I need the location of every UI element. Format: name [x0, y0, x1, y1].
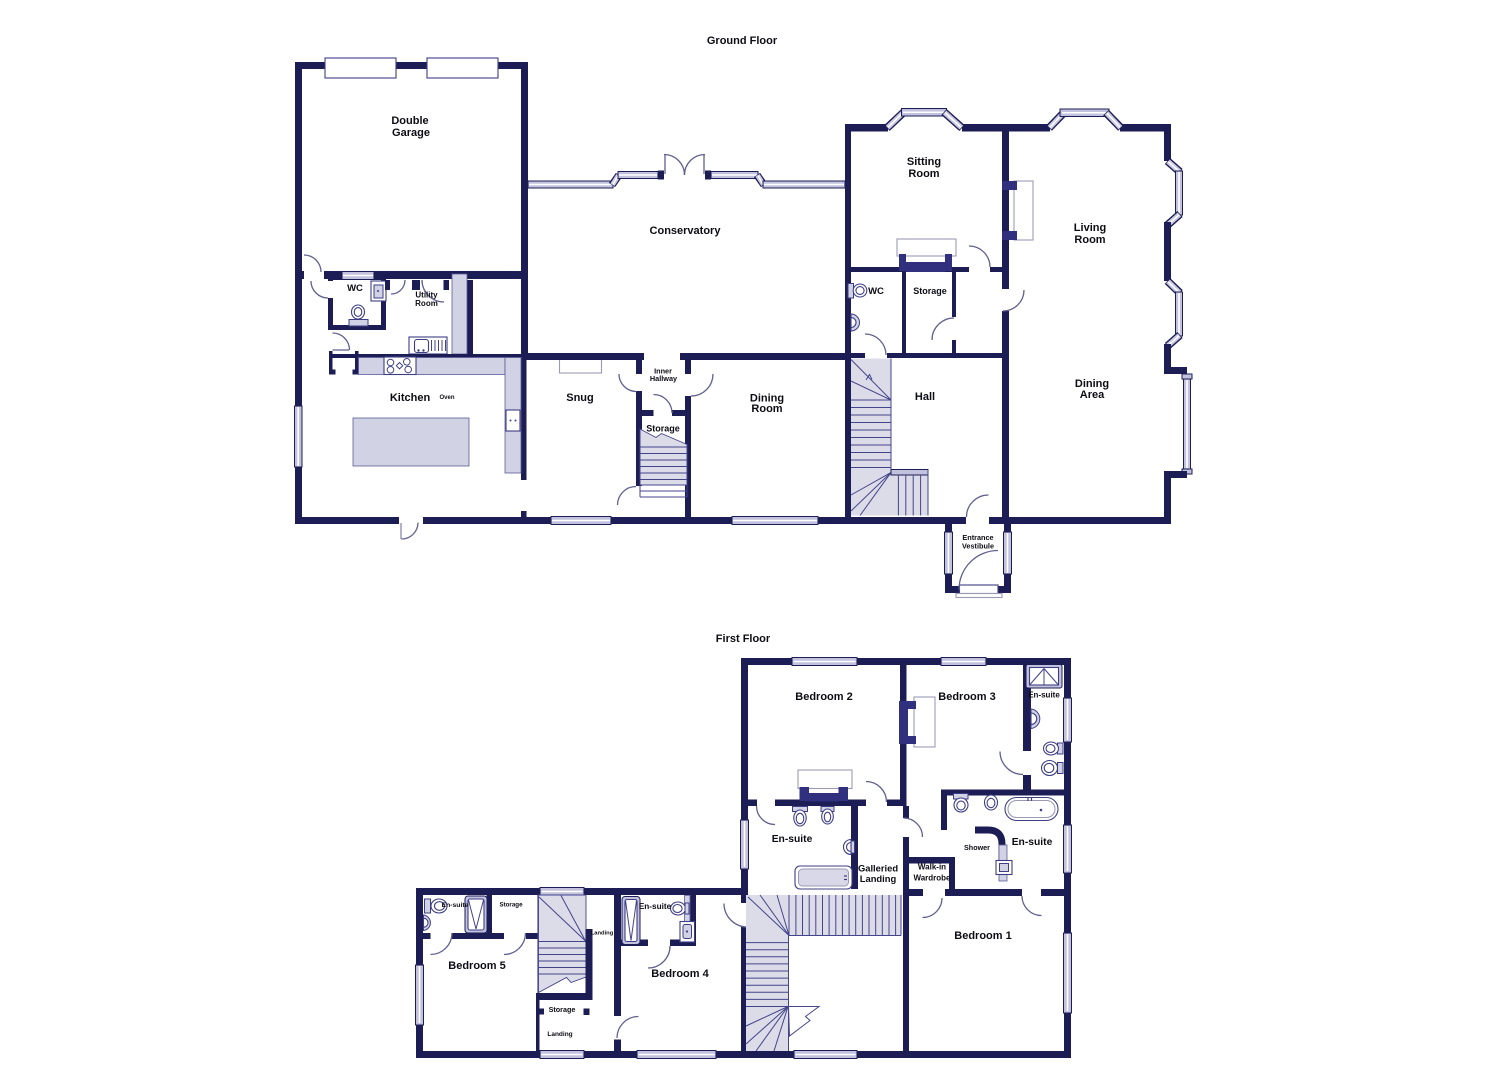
svg-text:Storage: Storage	[549, 1005, 576, 1014]
svg-text:Room: Room	[415, 299, 438, 308]
svg-text:Oven: Oven	[439, 395, 454, 401]
svg-text:Kitchen: Kitchen	[390, 392, 431, 404]
svg-text:En-suite: En-suite	[772, 834, 813, 845]
svg-text:Conservatory: Conservatory	[650, 225, 722, 237]
svg-text:Hall: Hall	[915, 391, 935, 403]
svg-text:Hallway: Hallway	[650, 374, 678, 383]
svg-text:Snug: Snug	[566, 392, 594, 404]
svg-text:Storage: Storage	[913, 286, 947, 296]
svg-text:Bedroom 2: Bedroom 2	[795, 691, 852, 703]
svg-text:Room: Room	[751, 403, 782, 415]
svg-text:Storage: Storage	[646, 424, 680, 434]
svg-text:En-suite: En-suite	[442, 902, 469, 909]
svg-text:Wardrobe: Wardrobe	[913, 874, 951, 883]
svg-text:Walk-in: Walk-in	[918, 863, 946, 872]
svg-text:WC: WC	[868, 286, 884, 297]
svg-text:Room: Room	[1074, 234, 1105, 246]
svg-text:En-suite: En-suite	[1012, 837, 1053, 848]
svg-text:WC: WC	[347, 283, 363, 294]
svg-text:En-suite: En-suite	[1028, 691, 1060, 700]
svg-text:Bedroom 4: Bedroom 4	[651, 968, 709, 980]
svg-text:Storage: Storage	[499, 902, 523, 909]
svg-text:Landing: Landing	[547, 1031, 572, 1038]
svg-text:Room: Room	[908, 168, 939, 180]
svg-text:Garage: Garage	[392, 127, 430, 139]
svg-text:Shower: Shower	[964, 843, 990, 852]
svg-text:Bedroom 1: Bedroom 1	[954, 930, 1011, 942]
svg-text:Living: Living	[1074, 222, 1106, 234]
svg-text:Ground Floor: Ground Floor	[707, 35, 778, 47]
svg-text:Bedroom 5: Bedroom 5	[448, 960, 505, 972]
svg-text:Galleried: Galleried	[858, 863, 898, 874]
svg-text:Vestibule: Vestibule	[962, 542, 994, 551]
svg-text:En-suite: En-suite	[639, 902, 672, 911]
svg-text:Area: Area	[1080, 389, 1105, 401]
svg-text:First Floor: First Floor	[716, 633, 771, 645]
svg-text:Sitting: Sitting	[907, 156, 941, 168]
svg-text:Bedroom 3: Bedroom 3	[938, 691, 995, 703]
svg-text:Landing: Landing	[860, 873, 897, 884]
svg-text:Landing: Landing	[591, 931, 614, 937]
svg-text:Double: Double	[391, 115, 428, 127]
